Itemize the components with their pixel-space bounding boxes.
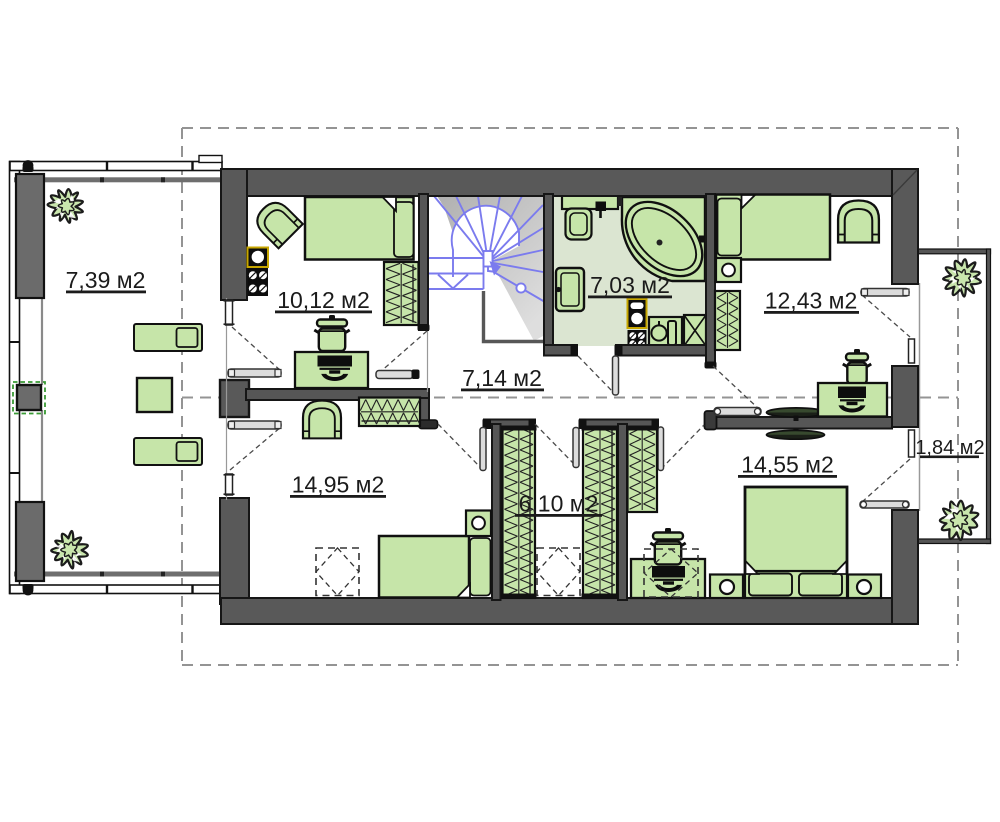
svg-text:14,55 м2: 14,55 м2	[741, 452, 834, 478]
svg-text:10,12 м2: 10,12 м2	[277, 287, 370, 313]
svg-text:12,43 м2: 12,43 м2	[765, 288, 858, 314]
svg-text:7,14 м2: 7,14 м2	[462, 365, 542, 391]
svg-text:14,95 м2: 14,95 м2	[292, 472, 385, 498]
svg-text:7,39 м2: 7,39 м2	[66, 267, 146, 293]
svg-text:7,03 м2: 7,03 м2	[590, 272, 670, 298]
svg-text:6,10 м2: 6,10 м2	[519, 491, 599, 517]
